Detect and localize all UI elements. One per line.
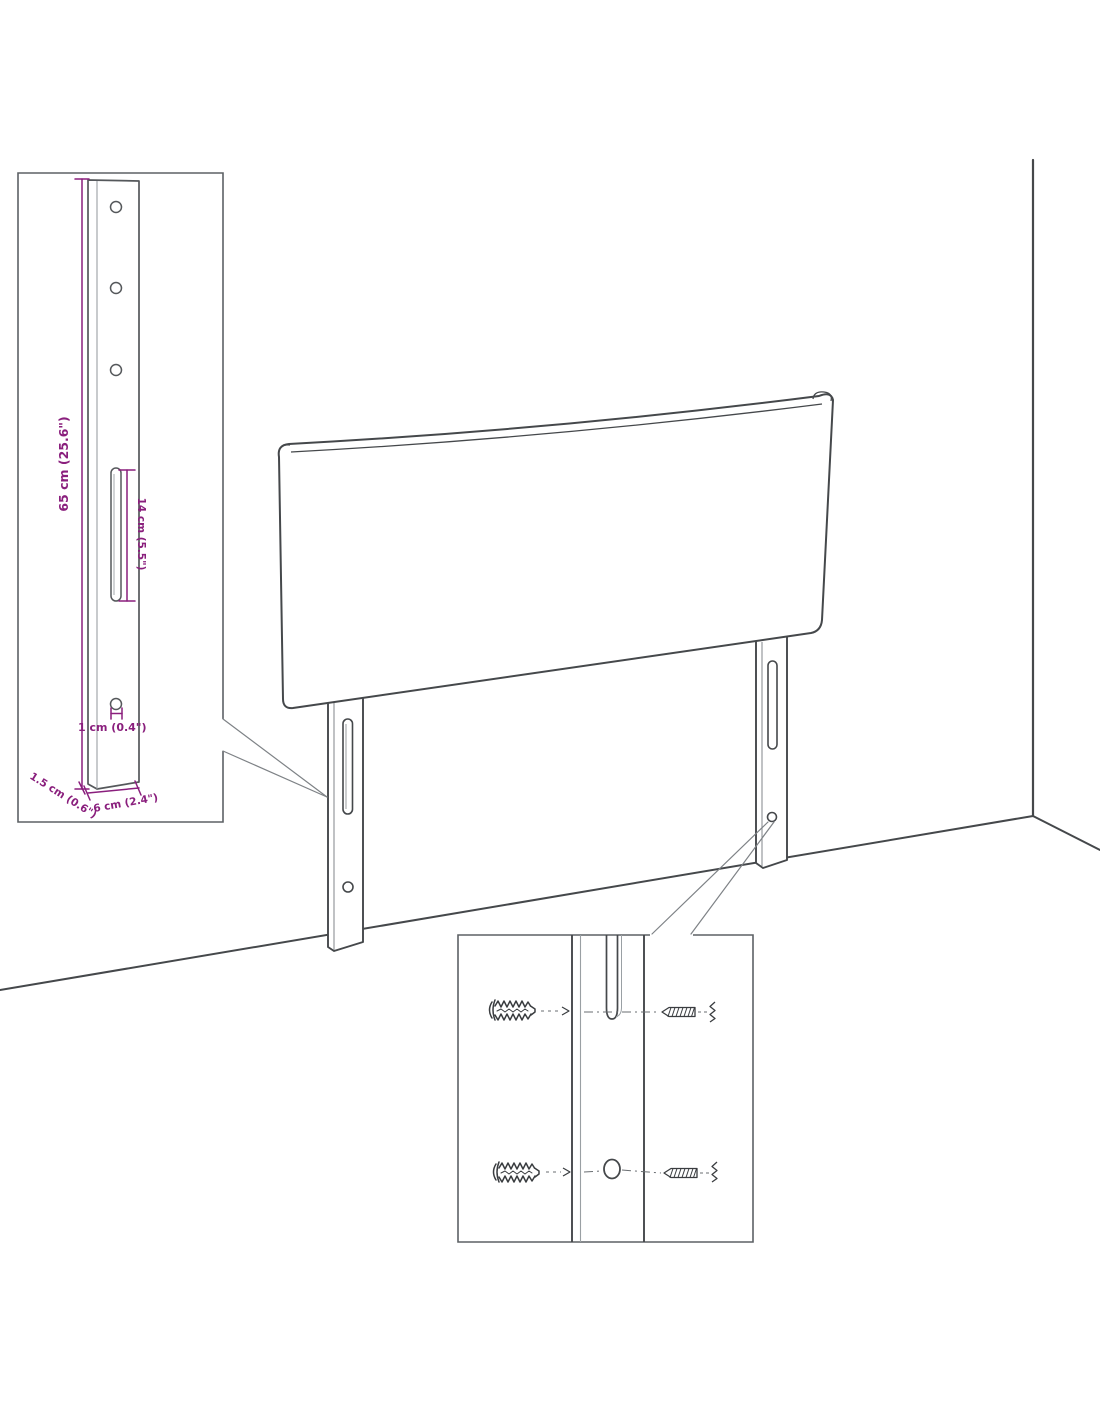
right-leg-hole xyxy=(768,813,777,822)
right-leg-slot xyxy=(768,661,777,749)
mounting-detail-inset xyxy=(458,935,753,1242)
bracket-pointer-lines xyxy=(223,719,327,797)
left-leg xyxy=(328,690,363,951)
diagram-canvas: 65 cm (25.6") 14 cm (5.5") 1 cm (0.4") 6… xyxy=(0,0,1100,1422)
floor-line-right xyxy=(1033,816,1100,850)
headboard-panel-outline xyxy=(279,394,833,708)
mounting-pointer-line-2 xyxy=(691,822,774,934)
dim-height-label: 65 cm (25.6") xyxy=(56,416,71,511)
dim-hole-label: 1 cm (0.4") xyxy=(78,721,147,734)
left-leg-slot xyxy=(343,719,353,814)
left-leg-hole xyxy=(343,882,353,892)
bracket-drawing xyxy=(88,180,139,789)
mounting-inset-border xyxy=(458,935,753,1242)
right-leg xyxy=(756,636,787,868)
dim-slot-label: 14 cm (5.5") xyxy=(135,498,147,571)
bracket-detail-inset: 65 cm (25.6") 14 cm (5.5") 1 cm (0.4") 6… xyxy=(18,173,223,822)
headboard-dimension-diagram: 65 cm (25.6") 14 cm (5.5") 1 cm (0.4") 6… xyxy=(0,0,1100,1422)
headboard-panel xyxy=(279,392,833,708)
bracket-outline xyxy=(88,180,139,789)
